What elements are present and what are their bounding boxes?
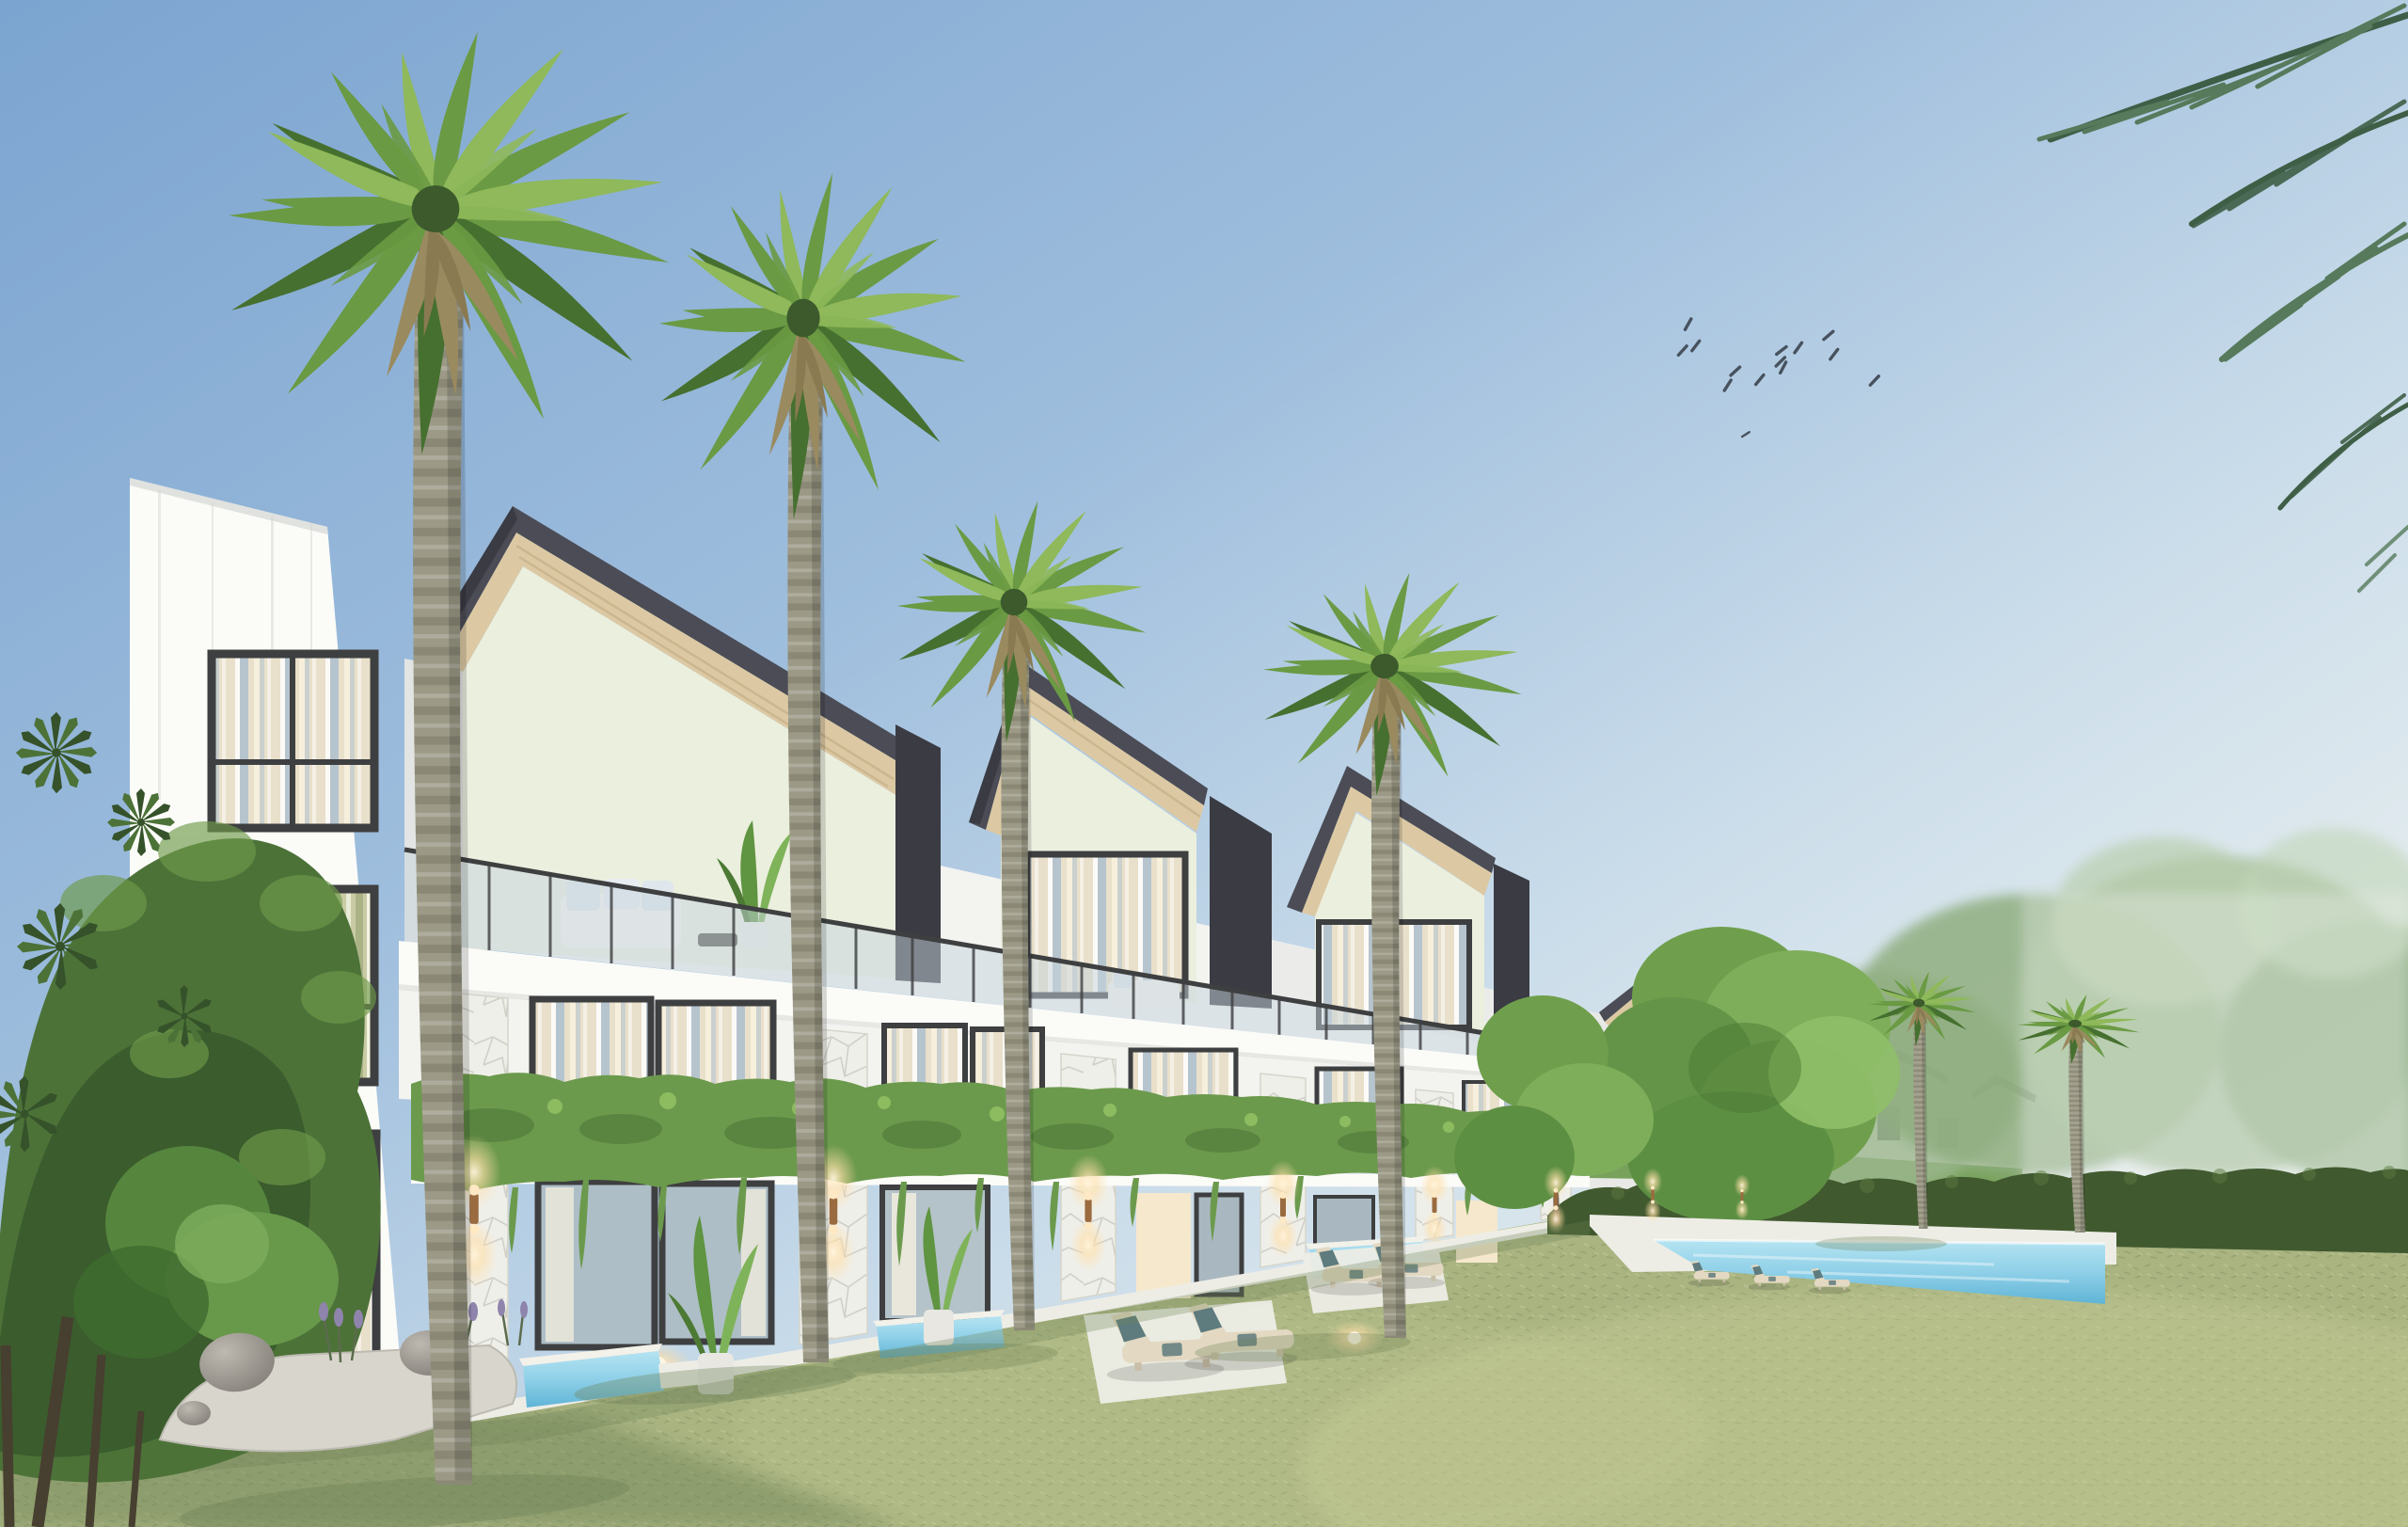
resort-render-image xyxy=(0,0,2408,1527)
scene-canvas xyxy=(0,0,2408,1527)
end-block-window-fl3 xyxy=(212,654,374,828)
